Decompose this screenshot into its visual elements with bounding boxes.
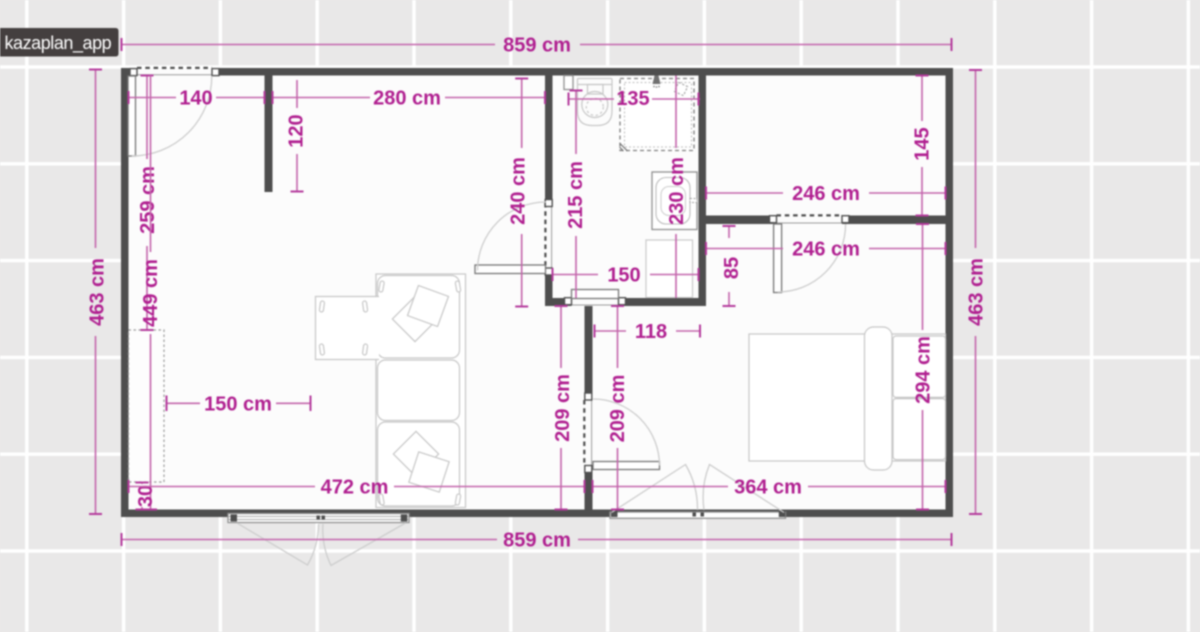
svg-text:463 cm: 463 cm	[86, 258, 108, 326]
svg-text:135: 135	[616, 88, 649, 110]
svg-text:259 cm: 259 cm	[137, 166, 159, 234]
svg-text:364 cm: 364 cm	[734, 477, 802, 499]
svg-text:246 cm: 246 cm	[792, 239, 860, 261]
svg-text:449 cm: 449 cm	[140, 259, 162, 327]
svg-text:85: 85	[721, 257, 743, 279]
svg-text:150: 150	[607, 265, 640, 287]
svg-text:859 cm: 859 cm	[503, 35, 571, 57]
svg-text:280 cm: 280 cm	[373, 88, 441, 110]
svg-text:463 cm: 463 cm	[965, 258, 987, 326]
svg-text:230 cm: 230 cm	[666, 157, 688, 225]
svg-text:120: 120	[285, 114, 307, 147]
svg-text:240 cm: 240 cm	[507, 157, 529, 225]
svg-text:294 cm: 294 cm	[912, 336, 934, 404]
svg-text:215 cm: 215 cm	[565, 161, 587, 229]
svg-text:246 cm: 246 cm	[792, 183, 860, 205]
svg-text:30: 30	[135, 485, 157, 507]
svg-text:140: 140	[179, 88, 212, 110]
svg-text:145: 145	[912, 127, 934, 160]
svg-text:209 cm: 209 cm	[552, 374, 574, 442]
svg-text:kazaplan_app: kazaplan_app	[5, 33, 112, 54]
svg-text:859 cm: 859 cm	[503, 530, 571, 552]
svg-text:209 cm: 209 cm	[607, 375, 629, 443]
svg-text:472 cm: 472 cm	[321, 477, 389, 499]
svg-text:150 cm: 150 cm	[204, 393, 272, 415]
svg-text:118: 118	[635, 321, 667, 343]
